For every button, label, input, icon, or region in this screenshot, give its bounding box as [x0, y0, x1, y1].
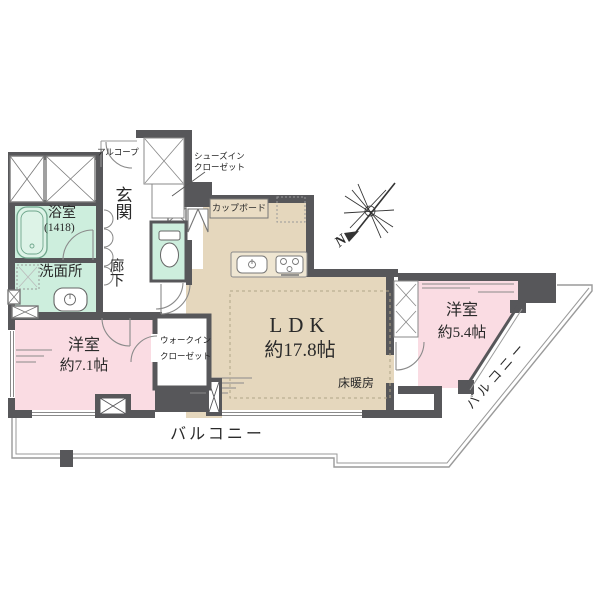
bedroom2-closet: [394, 281, 418, 337]
bathtub-icon: [17, 207, 47, 258]
kitchen-sink-icon: [237, 256, 267, 273]
vanity-sink-icon: [54, 288, 87, 311]
hallway-label: 廊下: [107, 258, 124, 308]
ldk-door: [161, 285, 190, 314]
cupboard-label: カップボード: [210, 200, 268, 217]
sic-label-line2: クローゼット: [194, 163, 245, 173]
balcony-divider: [60, 450, 73, 467]
bathroom-size-label: (1418): [44, 222, 75, 235]
kitchen-counter: [231, 252, 307, 277]
toilet-room: [151, 222, 186, 281]
floor-heating-label: 床暖房: [338, 377, 374, 391]
toilet-door: [156, 283, 183, 309]
wic-label-line2: クローゼット: [160, 352, 211, 362]
alcove-label: アルコープ: [97, 148, 141, 158]
bedroom1-size-label: 約7.1帖: [38, 358, 130, 375]
toilet-bowl-icon: [161, 243, 179, 267]
south-pillar: [95, 394, 131, 418]
ldk-size-label: 約17.8帖: [235, 340, 365, 362]
bedroom1-label: 洋室: [52, 337, 116, 355]
ldk-label: LDK: [240, 313, 360, 337]
bathroom-label: 浴室: [48, 206, 76, 222]
sic-label-line1: シューズイン: [194, 152, 245, 162]
shoe-closet: [144, 138, 184, 218]
floorplan-drawing: [0, 0, 600, 600]
bedroom2-size-label: 約5.4帖: [424, 325, 500, 342]
floorplan-canvas: アルコープ シューズイン クローゼット 玄関 浴室 (1418) 洗面所 廊下 …: [0, 0, 600, 600]
wic-label-line1: ウォークイン: [160, 336, 211, 346]
compass-icon: [344, 183, 395, 242]
toilet-tank-icon: [159, 231, 180, 240]
washroom-label: 洗面所: [39, 264, 83, 281]
stove-icon: [276, 256, 303, 273]
double-door-leaf-1: [188, 209, 198, 232]
balcony-south-label: バルコニー: [150, 426, 285, 444]
entrance-label: 玄関: [112, 186, 132, 246]
bedroom2-label: 洋室: [430, 302, 494, 320]
